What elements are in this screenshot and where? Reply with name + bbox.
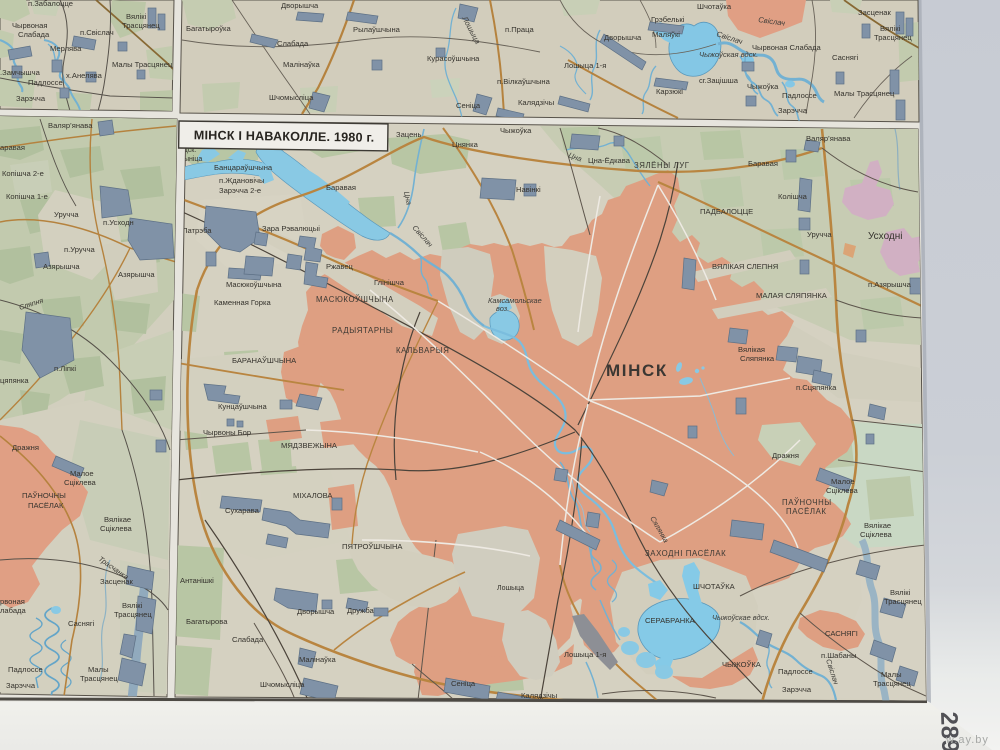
svg-text:w.ay.by: w.ay.by <box>945 734 989 746</box>
